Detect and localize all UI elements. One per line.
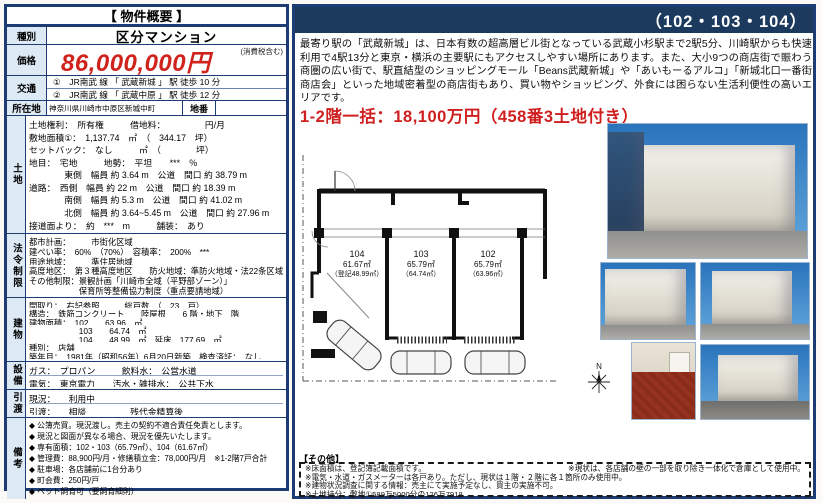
building-line: 築年月： 1981年（昭和56年）6月20日新築 検査済証： なし [29,351,283,359]
unit-registered-area: （64.74㎡） [402,270,441,278]
legal-line: 建ぺい率： 60% （70%） 容積率： 200% *** [29,246,283,256]
legal-line: 保育所等整備協力制度（重点要請地域） [29,285,283,295]
section-legal: 法令制限 都市計画： 市街化区域 建ぺい率： 60% （70%） 容積率： 20… [7,233,286,297]
remark-line: ◆ 専有面積：102・103（65.79㎡）、104（61.67㎡） [29,442,283,453]
land-label: 土地 [7,116,26,233]
legal-line: 都市計画： 市街化区域 [29,236,283,246]
building-line: 建物面積： 102 63.96 ㎡ [29,317,283,325]
area-description: 最寄り駅の「武蔵新城」は、日本有数の超高層ビル街となっている武蔵小杉駅まで2駅5… [300,38,812,106]
lot-number-value [216,101,286,115]
photo-building-front [607,123,808,259]
land-line: 地目： 宅地 地勢： 平坦 *** ％ [29,156,283,169]
bulk-price-highlight: 1-2階一括：18,100万円（458番3土地付き） [300,103,639,127]
land-line: 接道面より： 約 *** m 舗装： あり [29,219,283,232]
unit-area: 65.79㎡ [407,260,435,269]
remark-line: ◆ 管理費：88,900円/月・修繕積立金：78,000円/月 ※1-2階7戸合… [29,453,283,464]
tax-note: (消費税含む) [241,46,284,57]
building-line: 間取り： 右記参照 総戸数 （ 23 戸） [29,300,283,308]
facilities-line: ガス： プロパン 飲料水： 公営水道 [29,364,283,375]
building-line: 104 48.99 ㎡ 延床 177.69 ㎡ [29,334,283,342]
legal-line: 用途地域： 準住居地域 [29,256,283,266]
unit-area: 65.79㎡ [474,260,502,269]
legal-label: 法令制限 [7,234,26,297]
unit-area: 61.67㎡ [343,260,371,269]
remark-line: ◆ ペット飼育可（要飼育細則） [29,486,283,497]
svg-text:N: N [596,362,602,371]
unit-id: 104 [349,249,364,259]
access-line: ① JR南武 線 「 武蔵新城 」 駅 徒歩 10 分 [47,76,286,88]
handover-line: 現況： 利用中 [29,392,283,403]
price-value: 86,000,000円 [47,43,211,78]
handover-label: 引渡 [7,390,26,417]
land-line: 土地権利： 所有権 借地料： 円/月 [29,118,283,131]
land-line: 東側 幅員 約 3.64 m 公道 間口 約 38.79 m [29,168,283,181]
photo-building-rear [700,344,810,420]
property-overview-table: 【 物件概要 】 種別 区分マンション 価格 86,000,000円 (消費税含… [4,4,289,491]
land-line: 北側 幅員 約 3.64~5.45 m 公道 間口 約 27.96 m [29,206,283,219]
building-line: 構造： 鉄筋コンクリート 陸屋根 6 階・地下 階 [29,308,283,316]
section-land: 土地 土地権利： 所有権 借地料： 円/月 敷地面積①： 1,137.74 ㎡ … [7,115,286,233]
remark-line: ◆ 町会費：250円/戸 [29,475,283,486]
row-location: 所在地 神奈川県川崎市中原区新城中町 地番 [7,100,286,115]
unit-id: 103 [413,249,428,259]
unit-id: 102 [480,249,495,259]
remark-line: ◆ 公簿売買。現況渡し。売主の契約不適合責任免責とします。 [29,420,283,431]
access-label: 交通 [7,76,47,100]
land-line: セットバック： なし ㎡ （ 坪） [29,143,283,156]
remark-line: ◆ 駐車場：各店舗前に1台分あり [29,464,283,475]
section-remarks: 備考 ◆ 公簿売買。現況渡し。売主の契約不適合責任免責とします。 ◆ 現況と図面… [7,417,286,499]
compass-north-icon: N [585,360,613,396]
photo-entrance-corridor [631,342,696,420]
other-note: ※土地持分：敷地①589万5000分の126万7918 [305,491,805,500]
land-line: 敷地面積①： 1,137.74 ㎡ （ 344.17 坪） [29,131,283,144]
remarks-label: 備考 [7,418,26,499]
floorplan: 104 61.67㎡ （登記48.99㎡） 103 65.79㎡ （64.74㎡… [297,133,607,391]
handover-line: 引渡： 相談 残代金精算後 [29,403,283,416]
section-facilities: 設備 ガス： プロパン 飲料水： 公営水道 電気： 東京電力 汚水・雑排水： 公… [7,361,286,389]
table-title: 【 物件概要 】 [7,7,286,26]
kind-value: 区分マンション [47,27,286,44]
price-label: 価格 [7,45,47,75]
photo-building-side-left [600,262,696,340]
lot-number-label: 地番 [182,101,216,115]
section-handover: 引渡 現況： 利用中 引渡： 相談 残代金精算後 [7,389,286,417]
other-notes-box: ※床面積は、登記簿記載面積です。 ※現状は、各店舗の壁の一部を取り除き一体化で倉… [299,462,811,497]
building-label: 建物 [7,298,26,361]
land-line: 道路： 西側 幅員 約 22 m 公道 間口 約 18.39 m [29,181,283,194]
remark-line: ◆ 現況と図面が異なる場合、現況を優先いたします。 [29,431,283,442]
kind-label: 種別 [7,27,47,44]
row-kind: 種別 区分マンション [7,26,286,44]
row-access: 交通 ① JR南武 線 「 武蔵新城 」 駅 徒歩 10 分 ② JR南武 線 … [7,75,286,100]
facilities-label: 設備 [7,362,26,389]
location-label: 所在地 [7,101,47,115]
unit-registered-area: （63.96㎡） [469,270,508,278]
row-price: 価格 86,000,000円 (消費税含む) [7,44,286,75]
location-value: 神奈川県川崎市中原区新城中町 [47,101,182,115]
land-line: 南側 幅員 約 5.3 m 公道 間口 約 41.02 m [29,193,283,206]
legal-line: 高度地区： 第３種高度地区 防火地域：準防火地域・法22条区域 [29,265,283,275]
unit-registered-area: （登記48.99㎡） [331,269,384,278]
section-building: 建物 間取り： 右記参照 総戸数 （ 23 戸） 構造： 鉄筋コンクリート 陸屋… [7,297,286,361]
facilities-line: 電気： 東京電力 汚水・雑排水： 公共下水 [29,375,283,388]
legal-line: その他制限：景観計画「川崎市全域（平野部ゾーン）」 [29,275,283,285]
unit-numbers-header: （102・103・104） [295,7,813,33]
building-line: 種別： 店舗 [29,342,283,350]
building-line: 103 64.74 ㎡ [29,325,283,333]
property-flyer: 【 物件概要 】 種別 区分マンション 価格 86,000,000円 (消費税含… [0,0,822,503]
photo-building-side-right [700,262,810,340]
